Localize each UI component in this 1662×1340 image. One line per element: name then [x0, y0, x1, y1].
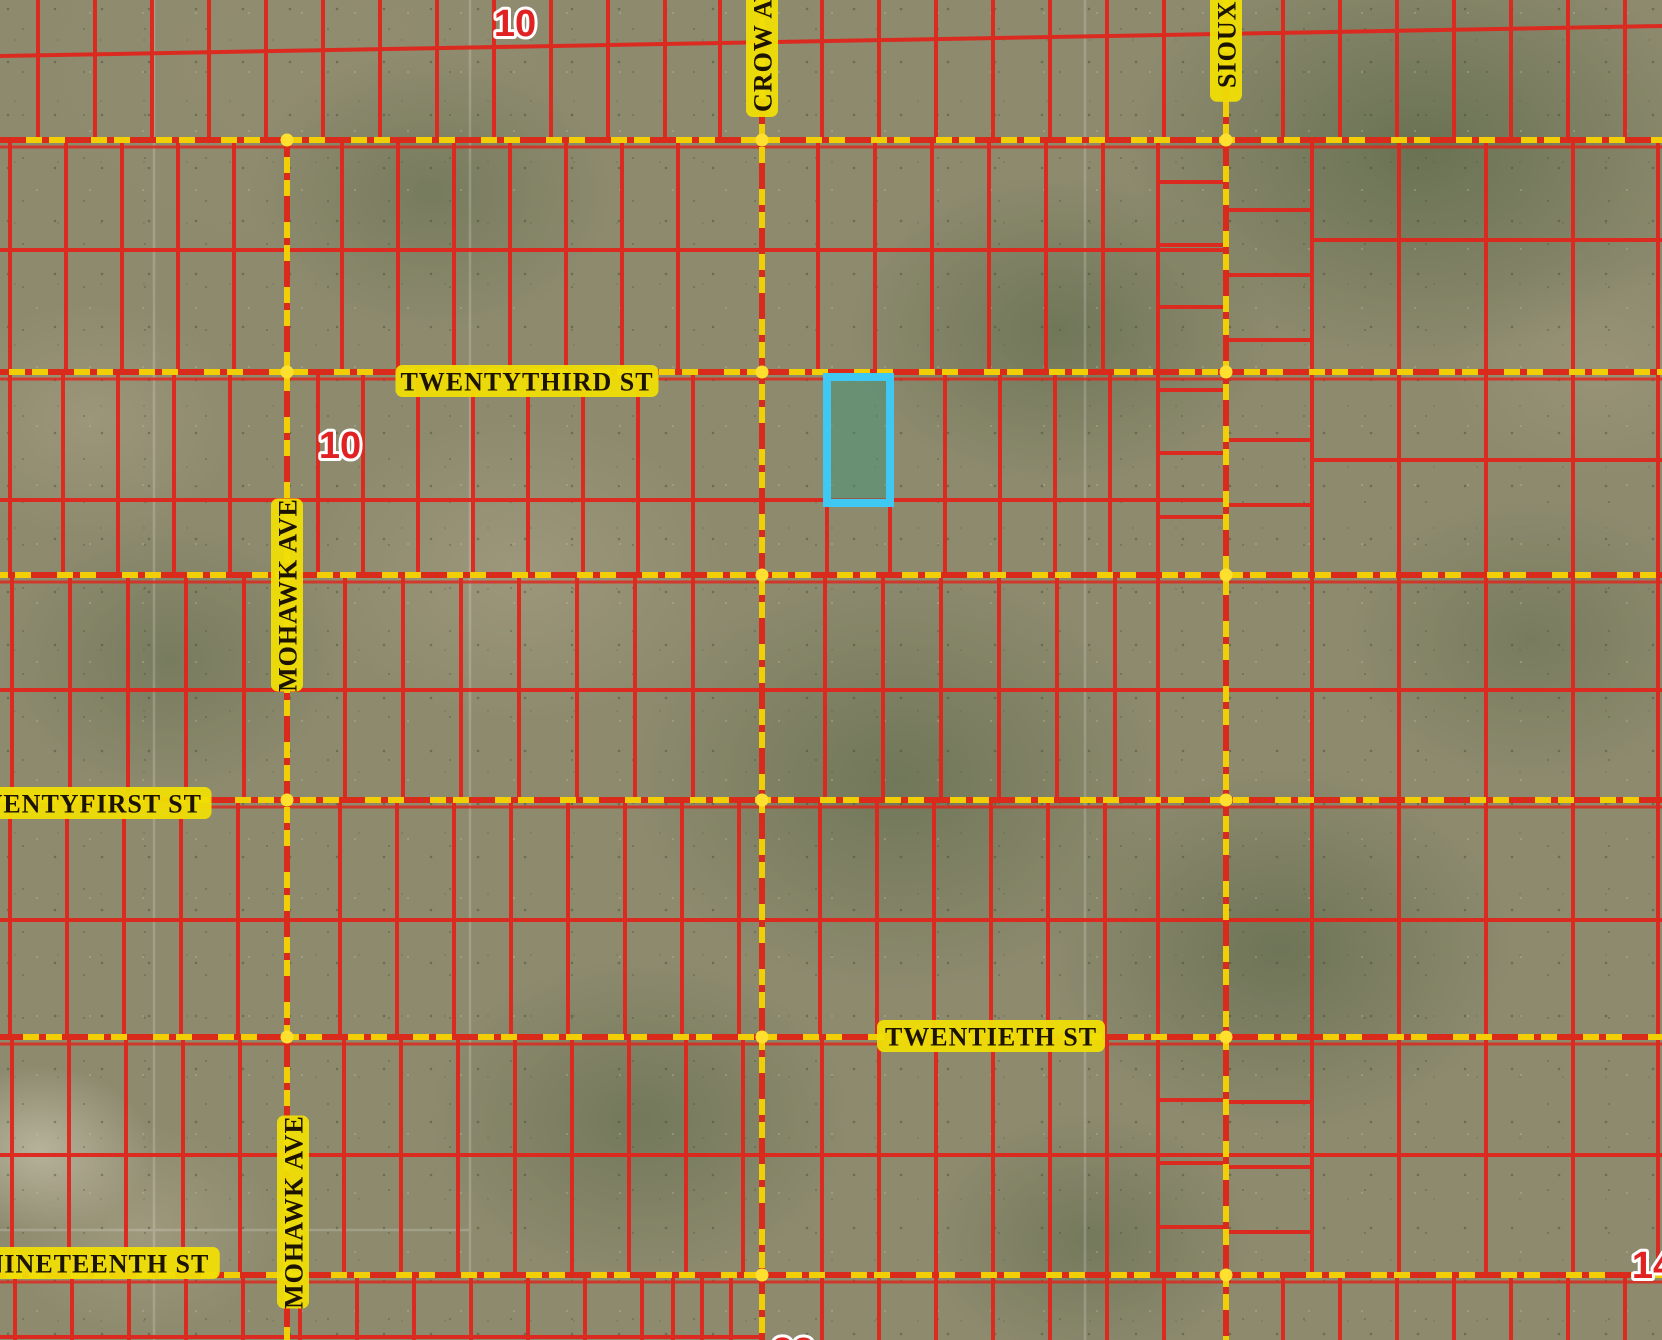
svg-text:CROW AVE: CROW AVE: [749, 0, 778, 112]
section-marker: 10: [494, 3, 536, 45]
svg-text:TWENTIETH ST: TWENTIETH ST: [885, 1023, 1097, 1052]
section-marker: 10: [319, 425, 361, 467]
svg-text:TWENTYTHIRD ST: TWENTYTHIRD ST: [400, 368, 653, 397]
street-label-mohawk-ave: MOHAWK AVE: [277, 1115, 309, 1309]
svg-text:TWENTYFIRST ST: TWENTYFIRST ST: [0, 790, 202, 819]
parcel-overlay: TWENTYTHIRD STTWENTYFIRST STTWENTIETH ST…: [0, 0, 1662, 1340]
section-marker: 23: [772, 1331, 814, 1340]
street-label-mohawk-ave: MOHAWK AVE: [271, 498, 303, 692]
parcel-grid-lines: [0, 0, 1662, 1340]
street-label-sioux-ave: SIOUX AVE: [1210, 0, 1242, 102]
selected-parcel[interactable]: [827, 377, 890, 503]
road-lines: [0, 0, 1662, 1340]
svg-text:NINETEENTH ST: NINETEENTH ST: [0, 1250, 209, 1279]
section-marker: 14: [1632, 1245, 1662, 1287]
street-label-nineteenth-st: NINETEENTH ST: [0, 1247, 220, 1279]
road-intersections: [281, 134, 1233, 1282]
svg-text:MOHAWK AVE: MOHAWK AVE: [280, 1115, 309, 1309]
street-label-twentyfirst-st: TWENTYFIRST ST: [0, 787, 212, 819]
svg-text:SIOUX AVE: SIOUX AVE: [1213, 0, 1242, 88]
map-viewport[interactable]: TWENTYTHIRD STTWENTYFIRST STTWENTIETH ST…: [0, 0, 1662, 1340]
street-label-twentythird-st: TWENTYTHIRD ST: [396, 365, 659, 397]
faint-imagery-lines: [0, 0, 1085, 1340]
street-label-crow-ave: CROW AVE: [746, 0, 778, 117]
svg-text:MOHAWK AVE: MOHAWK AVE: [274, 498, 303, 692]
street-label-twentieth-st: TWENTIETH ST: [877, 1020, 1105, 1052]
